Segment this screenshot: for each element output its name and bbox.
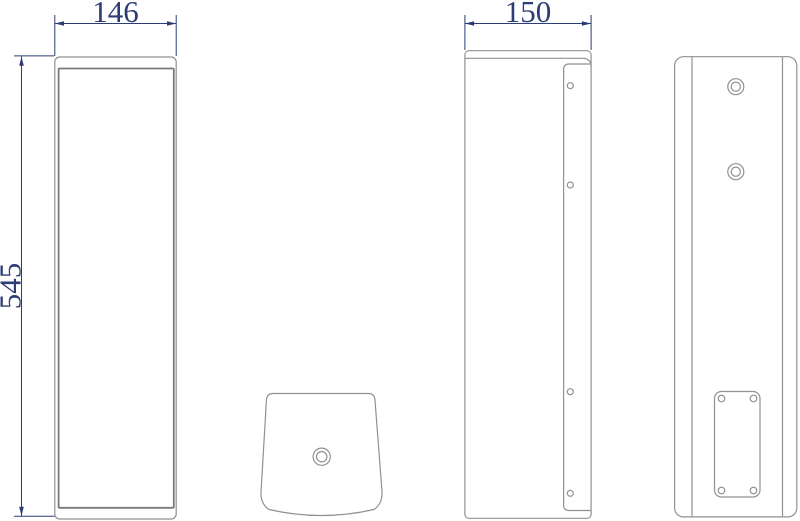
side-rear-panel-edge bbox=[564, 64, 592, 511]
screw-hole bbox=[567, 389, 573, 395]
plate-screw-hole bbox=[750, 395, 757, 402]
front-view bbox=[55, 57, 176, 519]
height-dimension-label: 545 bbox=[0, 263, 28, 310]
side-cabinet-outline bbox=[465, 51, 591, 519]
front-grille-outline bbox=[59, 69, 174, 508]
screw-hole bbox=[567, 83, 573, 89]
front-cabinet-outline bbox=[55, 57, 176, 519]
bottom-cabinet-outline bbox=[261, 394, 382, 516]
arrowhead-right-icon bbox=[582, 21, 591, 26]
arrowhead-left-icon bbox=[55, 21, 64, 26]
plate-screw-hole bbox=[718, 487, 725, 494]
side-view bbox=[465, 51, 591, 519]
mounting-insert-inner bbox=[731, 82, 740, 91]
screw-hole bbox=[567, 490, 573, 496]
plate-screw-hole bbox=[718, 395, 725, 402]
back-cabinet-outline bbox=[675, 57, 797, 517]
mounting-insert-inner bbox=[731, 167, 740, 176]
stand-insert-inner bbox=[317, 452, 327, 462]
mounting-insert-outer bbox=[728, 164, 744, 180]
arrowhead-left-icon bbox=[465, 21, 474, 26]
arrowhead-right-icon bbox=[167, 21, 176, 26]
back-view bbox=[675, 57, 797, 517]
plate-screw-hole bbox=[750, 487, 757, 494]
mounting-insert-outer bbox=[728, 79, 744, 95]
depth-dimension-label: 150 bbox=[505, 0, 552, 29]
width-dimension-label: 146 bbox=[92, 0, 139, 29]
technical-drawing: 146 150 545 bbox=[0, 0, 800, 521]
side-top-seam-line bbox=[465, 58, 591, 66]
arrowhead-down-icon bbox=[19, 507, 24, 516]
bottom-view bbox=[261, 394, 382, 516]
stand-insert-outer bbox=[313, 448, 330, 465]
terminal-plate bbox=[715, 392, 761, 498]
arrowhead-up-icon bbox=[19, 57, 24, 66]
drawing-sheet: 146 150 545 bbox=[0, 0, 800, 521]
screw-hole bbox=[567, 182, 573, 188]
